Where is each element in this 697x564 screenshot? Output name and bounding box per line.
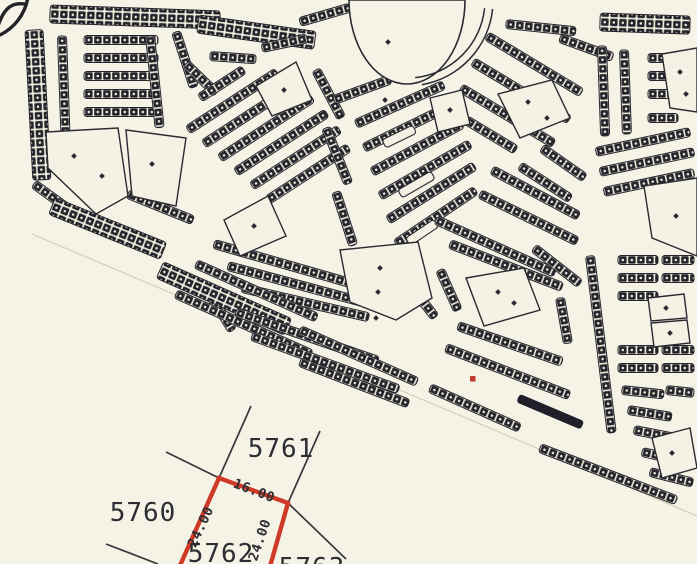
housing-row-strip bbox=[622, 386, 665, 399]
housing-row-strip bbox=[444, 344, 570, 400]
housing-row-strip bbox=[84, 54, 158, 63]
housing-row-strip bbox=[662, 364, 694, 373]
housing-row-strip bbox=[516, 394, 584, 430]
housing-row-strip bbox=[618, 256, 658, 265]
open-lot-parcel bbox=[644, 178, 697, 256]
housing-row-strip bbox=[506, 20, 577, 36]
housing-row-strip bbox=[618, 346, 658, 355]
housing-row-strip bbox=[172, 31, 198, 89]
housing-row-strip bbox=[662, 346, 694, 355]
open-lot-parcel bbox=[662, 48, 697, 112]
map-red-marker bbox=[470, 376, 476, 382]
site-plan-map: 5761 5760 5762 5763 16.00 24.00 24.00 bbox=[0, 0, 697, 564]
housing-row-strip bbox=[539, 144, 587, 181]
west-parcel-label: 5760 bbox=[110, 498, 177, 528]
lot-line-north bbox=[219, 406, 251, 478]
housing-row-strip bbox=[627, 406, 672, 422]
housing-row-strip bbox=[84, 72, 158, 81]
housing-row-strip bbox=[662, 274, 694, 283]
plaza-south-mark bbox=[382, 97, 388, 103]
housing-row-strip bbox=[332, 191, 358, 247]
housing-row-strip bbox=[556, 297, 573, 344]
north-parcel-label: 5761 bbox=[248, 434, 315, 464]
housing-row-strip bbox=[620, 50, 632, 134]
dimension-label-top: 16.00 bbox=[231, 476, 277, 506]
housing-row-strip bbox=[436, 268, 462, 312]
housing-row-strip bbox=[662, 256, 694, 265]
southeast-parcel-label-partial: 5763 bbox=[279, 553, 346, 564]
lot-line-west bbox=[166, 452, 219, 478]
housing-row-strip bbox=[600, 13, 691, 34]
housing-row-strip bbox=[58, 36, 70, 132]
housing-row-strip bbox=[299, 3, 351, 26]
housing-row-strip bbox=[666, 386, 695, 398]
housing-row-strip bbox=[618, 274, 658, 283]
housing-row-strip bbox=[84, 108, 158, 117]
housing-row-strip bbox=[648, 114, 678, 123]
corner-pen-mark-icon bbox=[0, 0, 28, 35]
housing-row-strip bbox=[586, 255, 617, 433]
scanned-site-plan-page: 5761 5760 5762 5763 16.00 24.00 24.00 bbox=[0, 0, 697, 564]
housing-row-strip bbox=[84, 90, 158, 99]
lot-center-mark bbox=[373, 315, 379, 321]
housing-row-strip bbox=[50, 5, 221, 29]
housing-row-strip bbox=[210, 52, 257, 64]
housing-row-strip bbox=[618, 364, 658, 373]
open-lot-parcel bbox=[126, 130, 186, 206]
lot-line-southeast bbox=[288, 503, 346, 559]
open-lot-parcel bbox=[340, 242, 432, 320]
lot-line-southwest bbox=[106, 544, 158, 564]
